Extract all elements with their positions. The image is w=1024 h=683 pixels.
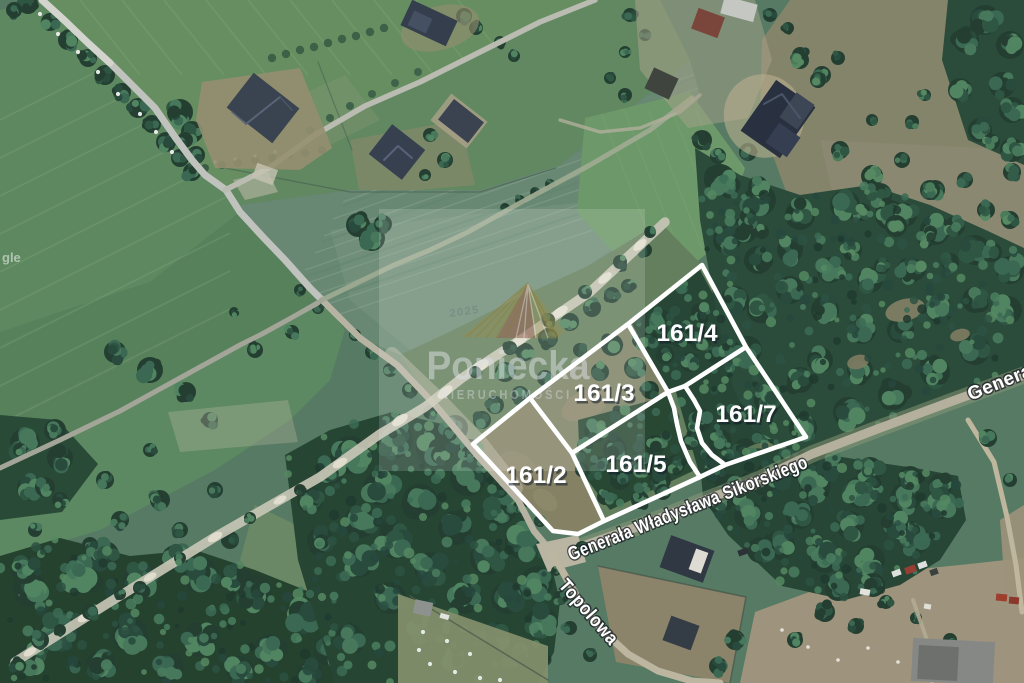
svg-text:161/2: 161/2 [505, 462, 566, 489]
svg-text:NIERUCHOMOŚCI: NIERUCHOMOŚCI [440, 387, 572, 402]
svg-text:161/3: 161/3 [573, 380, 634, 407]
svg-text:161/7: 161/7 [715, 401, 776, 428]
svg-text:161/5: 161/5 [605, 451, 666, 478]
svg-text:161/4: 161/4 [656, 320, 718, 347]
svg-text:Poniecka: Poniecka [427, 344, 591, 388]
svg-text:gle: gle [2, 250, 21, 265]
